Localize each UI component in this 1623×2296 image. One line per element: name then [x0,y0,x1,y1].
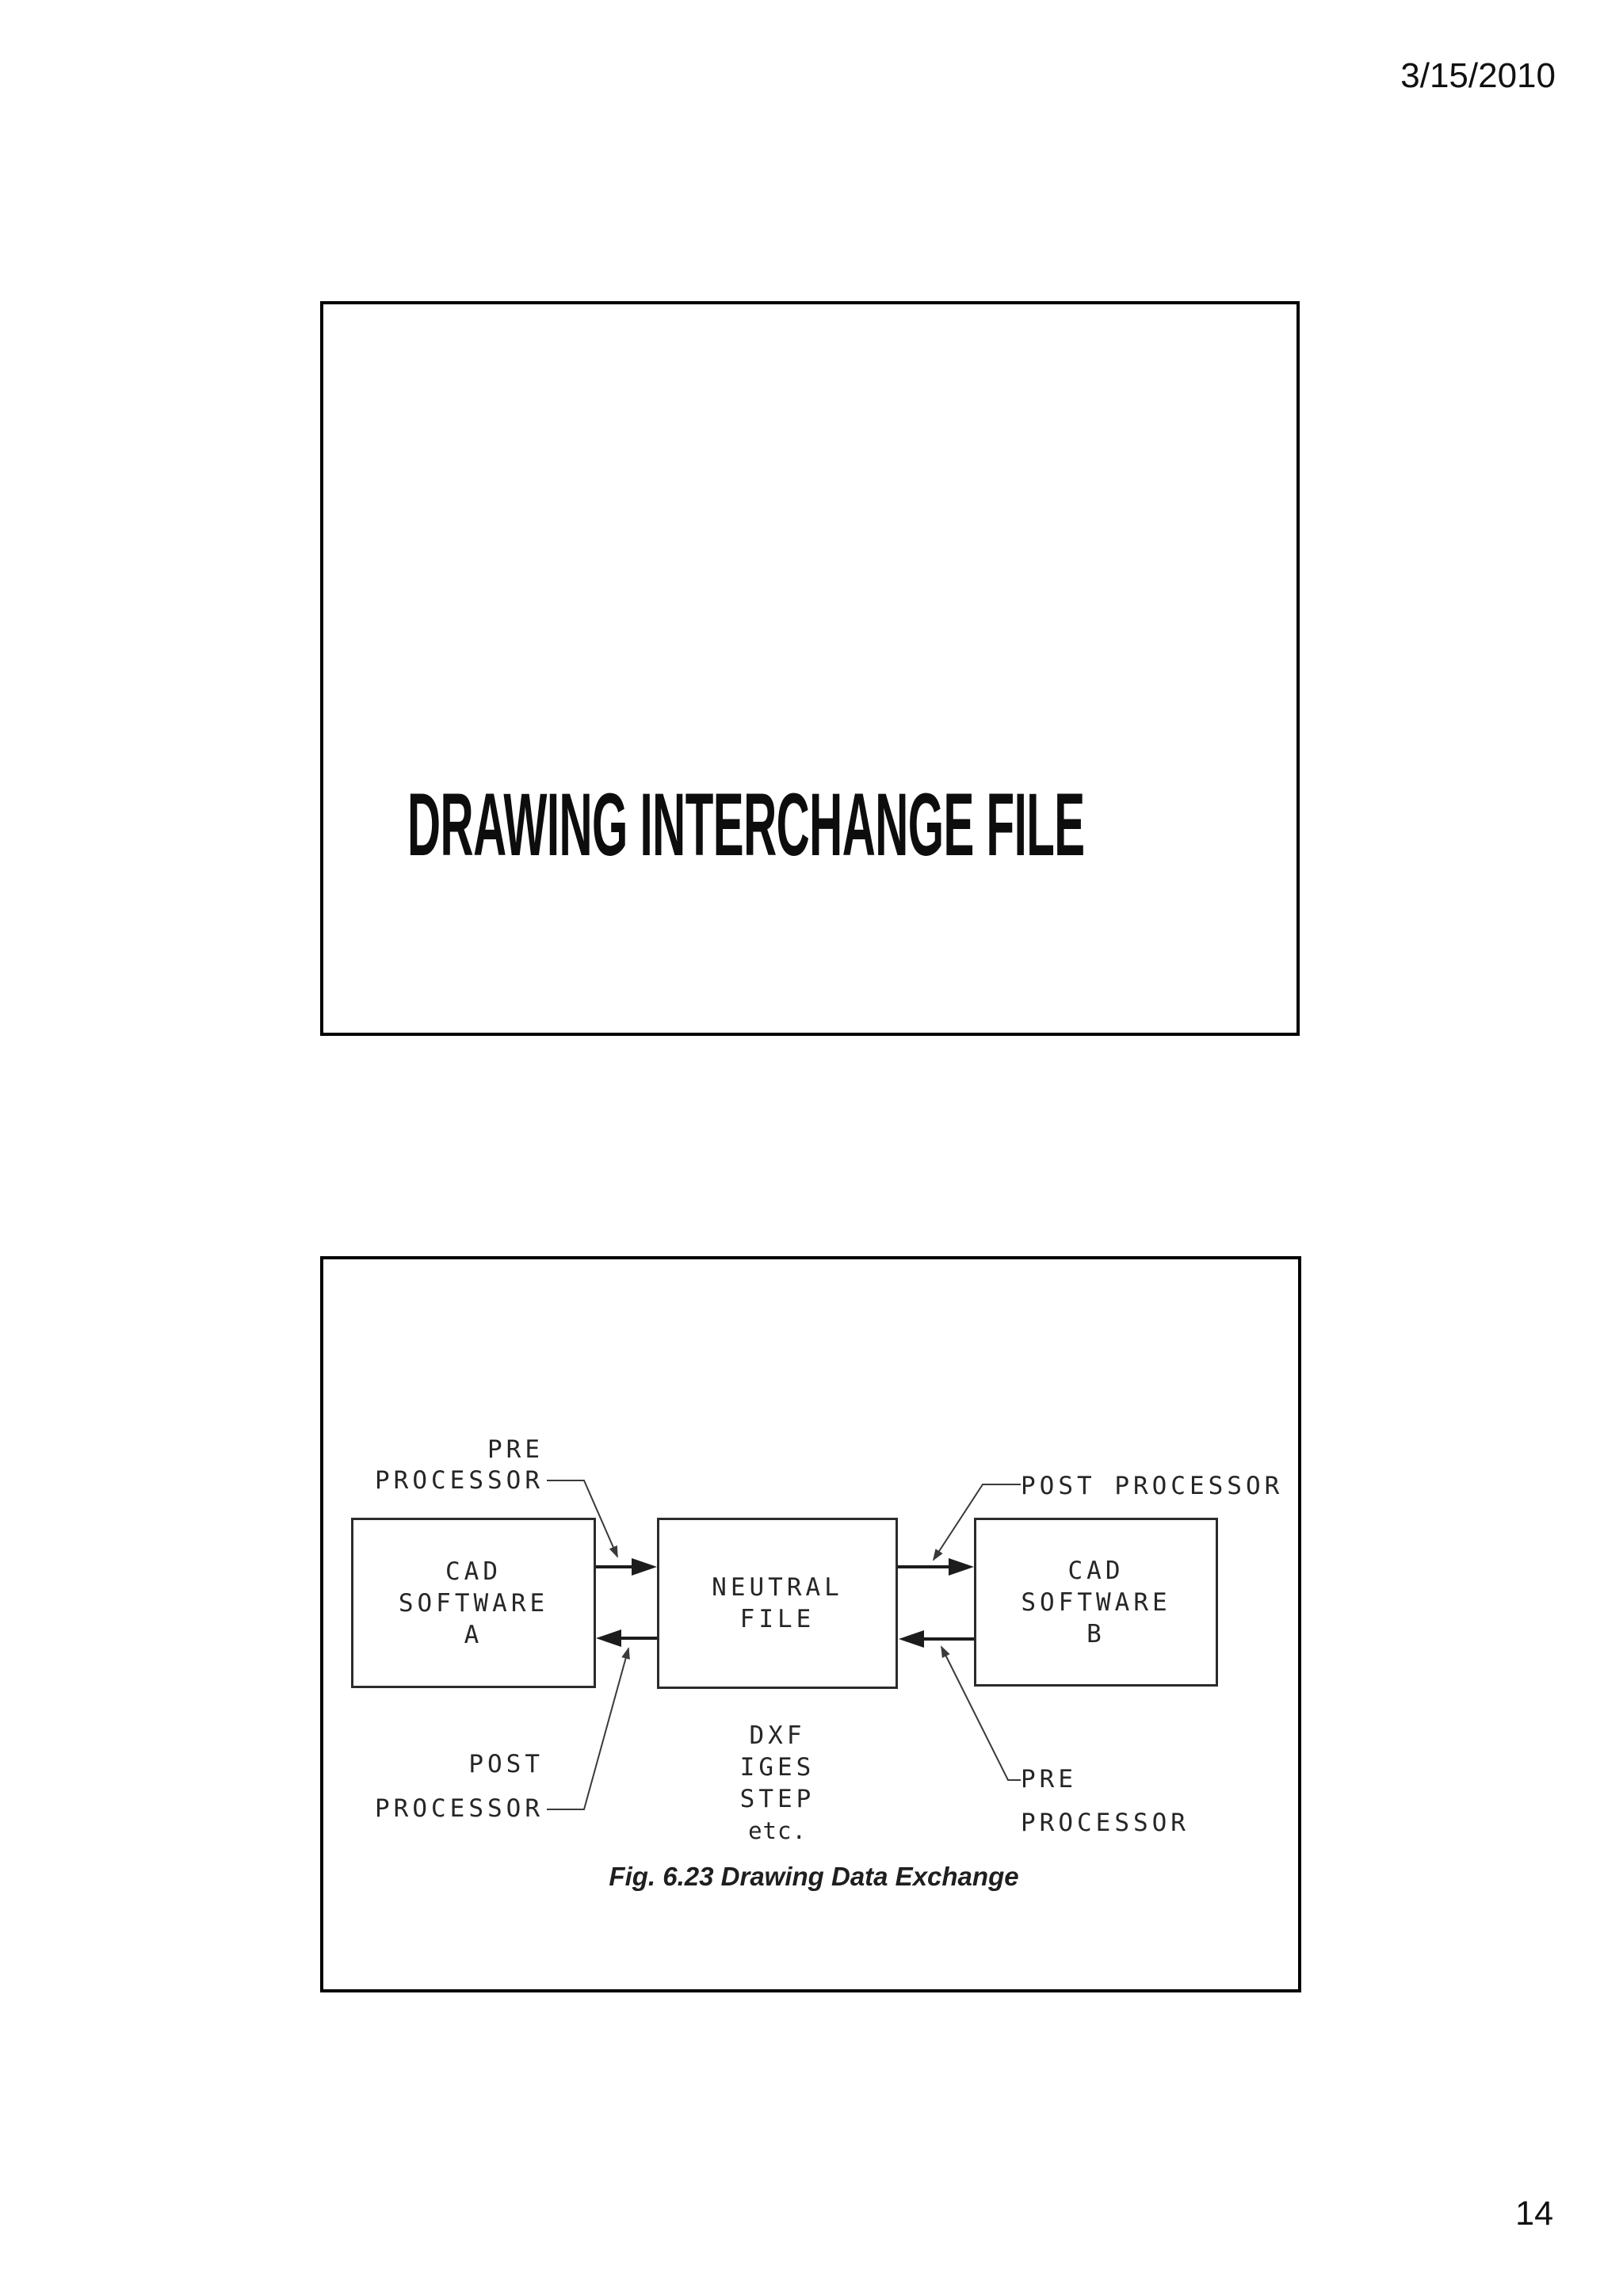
figure-caption: Fig. 6.23 Drawing Data Exchange [475,1861,1152,1893]
label-post-processor-bottom: POST PROCESSOR [349,1742,544,1831]
cad-software-a-box: CAD SOFTWARE A [351,1518,596,1688]
slide-1-title: DRAWING INTERCHANGE FILE [407,781,1085,869]
cad-software-b-box: CAD SOFTWARE B [974,1518,1218,1687]
box-line: FILE [740,1603,815,1635]
label-post-processor-top: POST PROCESSOR [1021,1471,1283,1502]
box-line: CAD [1068,1555,1125,1587]
format-item: IGES [657,1752,898,1783]
label-line: PRE [1021,1758,1258,1801]
label-line: POST [349,1742,544,1786]
box-line: NEUTRAL [712,1572,843,1603]
box-line: CAD [445,1556,502,1587]
label-line: PROCESSOR [349,1465,544,1496]
format-item: STEP [657,1783,898,1815]
label-line: POST PROCESSOR [1021,1471,1283,1502]
page-number: 14 [1515,2194,1553,2233]
header-date: 3/15/2010 [1400,55,1556,97]
format-item: etc. [657,1815,898,1847]
box-line: B [1086,1618,1106,1650]
neutral-file-box: NEUTRAL FILE [657,1518,898,1689]
label-line: PRE [349,1435,544,1465]
neutral-formats-list: DXF IGES STEP etc. [657,1720,898,1847]
slide-1-frame [320,301,1300,1036]
label-pre-processor-bottom: PRE PROCESSOR [1021,1758,1258,1845]
label-line: PROCESSOR [349,1786,544,1831]
box-line: SOFTWARE [399,1587,548,1619]
box-line: A [464,1619,483,1651]
format-item: DXF [657,1720,898,1752]
label-line: PROCESSOR [1021,1801,1258,1845]
label-pre-processor-top: PRE PROCESSOR [349,1435,544,1496]
document-page: 3/15/2010 DRAWING INTERCHANGE FILE [0,0,1623,2296]
box-line: SOFTWARE [1021,1587,1170,1618]
